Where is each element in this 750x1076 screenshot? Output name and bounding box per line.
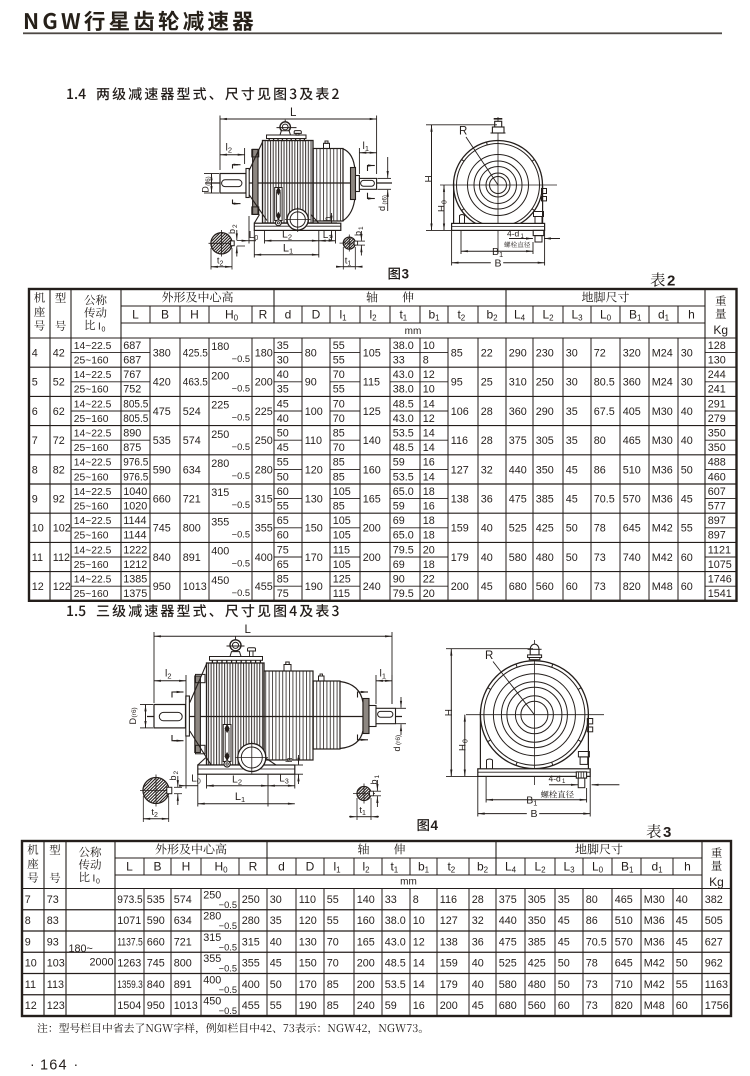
svg-text:241: 241 <box>708 384 726 396</box>
svg-text:d: d <box>278 860 285 874</box>
svg-text:4-d: 4-d <box>507 229 520 239</box>
svg-text:14~22.5: 14~22.5 <box>74 575 112 586</box>
svg-text:280: 280 <box>242 915 260 927</box>
svg-text:1013: 1013 <box>174 1000 198 1012</box>
svg-text:580: 580 <box>499 979 517 991</box>
svg-text:60: 60 <box>277 486 289 498</box>
svg-text:30: 30 <box>277 355 289 367</box>
svg-text:50: 50 <box>558 958 570 970</box>
svg-text:375: 375 <box>509 435 527 447</box>
svg-text:225: 225 <box>211 400 229 412</box>
svg-text:400: 400 <box>255 552 273 564</box>
svg-text:627: 627 <box>705 936 723 948</box>
svg-text:40: 40 <box>481 552 493 564</box>
svg-text:110: 110 <box>305 435 322 447</box>
svg-text:400: 400 <box>211 546 229 558</box>
svg-text:32: 32 <box>472 915 484 927</box>
svg-text:−0.5: −0.5 <box>232 471 250 481</box>
svg-text:973.5: 973.5 <box>117 894 142 906</box>
svg-text:85: 85 <box>333 428 345 440</box>
svg-text:100: 100 <box>305 406 323 418</box>
svg-text:375: 375 <box>499 894 517 906</box>
svg-text:1137.5: 1137.5 <box>117 936 142 948</box>
svg-text:3: 3 <box>402 267 410 282</box>
svg-text:574: 574 <box>174 894 192 906</box>
svg-text:45: 45 <box>566 464 578 476</box>
svg-text:−0.5: −0.5 <box>232 383 250 393</box>
svg-text:55: 55 <box>681 523 693 535</box>
svg-text:73: 73 <box>594 581 606 593</box>
svg-text:800: 800 <box>183 523 201 535</box>
svg-text:360: 360 <box>509 406 527 418</box>
svg-text:577: 577 <box>708 501 726 513</box>
svg-text:50: 50 <box>270 979 282 991</box>
svg-text:35: 35 <box>558 894 570 906</box>
svg-text:450: 450 <box>211 575 229 587</box>
svg-text:200: 200 <box>363 523 381 535</box>
svg-text:897: 897 <box>708 515 726 527</box>
svg-text:b: b <box>227 229 237 234</box>
svg-text:70: 70 <box>333 398 345 410</box>
svg-text:36: 36 <box>472 936 484 948</box>
svg-text:50: 50 <box>277 471 289 483</box>
svg-text:14: 14 <box>423 428 435 440</box>
svg-text:475: 475 <box>499 936 517 948</box>
svg-text:350: 350 <box>536 464 554 476</box>
svg-text:305: 305 <box>536 435 554 447</box>
svg-text:680: 680 <box>499 1000 517 1012</box>
svg-text:159: 159 <box>440 958 458 970</box>
svg-text:455: 455 <box>255 581 273 593</box>
svg-text:·: · <box>74 1056 79 1072</box>
svg-text:1375: 1375 <box>123 588 147 600</box>
svg-text:962: 962 <box>705 958 723 970</box>
svg-text:8: 8 <box>25 915 31 927</box>
svg-text:48.5: 48.5 <box>385 958 406 970</box>
svg-text:440: 440 <box>499 915 517 927</box>
svg-text:380: 380 <box>153 348 171 360</box>
svg-text:35: 35 <box>277 384 289 396</box>
svg-text:35: 35 <box>566 435 578 447</box>
svg-text:115: 115 <box>363 377 380 389</box>
svg-text:350: 350 <box>708 428 726 440</box>
svg-text:22: 22 <box>423 574 435 586</box>
svg-text:14: 14 <box>423 471 435 483</box>
svg-text:69: 69 <box>393 559 405 571</box>
svg-text:D: D <box>312 308 321 322</box>
svg-text:12: 12 <box>423 369 435 381</box>
svg-text:488: 488 <box>708 457 726 469</box>
svg-text:280: 280 <box>211 458 229 470</box>
svg-text:60: 60 <box>277 530 289 542</box>
svg-text:890: 890 <box>123 428 141 440</box>
svg-text:59: 59 <box>393 457 405 469</box>
svg-text:1040: 1040 <box>123 486 147 498</box>
svg-text:65: 65 <box>277 515 289 527</box>
svg-text:315: 315 <box>242 936 260 948</box>
svg-text:8: 8 <box>413 894 419 906</box>
svg-text:22: 22 <box>481 348 493 360</box>
svg-text:52: 52 <box>53 377 65 389</box>
svg-text:465: 465 <box>615 894 633 906</box>
svg-text:102: 102 <box>53 523 71 535</box>
svg-text:976.5: 976.5 <box>123 471 148 483</box>
svg-text:805.5: 805.5 <box>123 398 148 410</box>
svg-text:32: 32 <box>481 464 493 476</box>
svg-text:123: 123 <box>47 1000 65 1012</box>
svg-text:110: 110 <box>299 894 316 906</box>
svg-text:570: 570 <box>615 936 633 948</box>
svg-text:535: 535 <box>153 435 171 447</box>
svg-text:L: L <box>290 107 297 119</box>
svg-text:105: 105 <box>333 486 351 498</box>
svg-text:355: 355 <box>255 523 273 535</box>
svg-text:65: 65 <box>277 559 289 571</box>
svg-text:11: 11 <box>32 552 43 564</box>
svg-text:25~160: 25~160 <box>74 414 109 425</box>
svg-text:14~22.5: 14~22.5 <box>74 429 112 440</box>
svg-text:9: 9 <box>32 494 38 506</box>
svg-text:140: 140 <box>357 894 375 906</box>
svg-text:55: 55 <box>333 355 345 367</box>
svg-text:43.0: 43.0 <box>393 369 414 381</box>
svg-text:30: 30 <box>270 894 282 906</box>
svg-text:80: 80 <box>594 435 606 447</box>
svg-text:85: 85 <box>327 979 339 991</box>
svg-text:116: 116 <box>451 435 468 447</box>
svg-text:310: 310 <box>509 377 527 389</box>
svg-text:130: 130 <box>299 936 317 948</box>
svg-text:0: 0 <box>102 326 106 333</box>
svg-text:4: 4 <box>431 818 439 833</box>
svg-text:580: 580 <box>509 552 527 564</box>
svg-text:14~22.5: 14~22.5 <box>74 458 112 469</box>
svg-text:607: 607 <box>708 486 726 498</box>
svg-text:95: 95 <box>451 377 463 389</box>
svg-text:4-d: 4-d <box>549 774 562 784</box>
svg-text:130: 130 <box>708 355 726 367</box>
svg-text:55: 55 <box>327 894 339 906</box>
svg-text:−0.5: −0.5 <box>219 942 237 952</box>
svg-text:200: 200 <box>357 979 375 991</box>
svg-text:53.5: 53.5 <box>393 471 414 483</box>
svg-text:h: h <box>688 308 695 322</box>
svg-text:L: L <box>245 624 252 636</box>
svg-text:H: H <box>437 205 448 212</box>
svg-text:159: 159 <box>451 523 469 535</box>
svg-text:950: 950 <box>153 581 171 593</box>
svg-text:6: 6 <box>32 406 38 418</box>
svg-text:B: B <box>161 308 169 322</box>
svg-text:560: 560 <box>528 1000 546 1012</box>
svg-text:405: 405 <box>623 406 641 418</box>
svg-text:b: b <box>168 775 178 780</box>
svg-text:115: 115 <box>333 588 350 600</box>
svg-text:67.5: 67.5 <box>594 406 615 418</box>
svg-text:180~: 180~ <box>69 943 93 955</box>
svg-text:55: 55 <box>333 340 345 352</box>
svg-text:385: 385 <box>536 494 554 506</box>
svg-text:h: h <box>284 757 294 762</box>
svg-text:−0.5: −0.5 <box>232 529 250 539</box>
svg-text:425: 425 <box>528 958 546 970</box>
svg-text:127: 127 <box>451 464 469 476</box>
svg-text:16: 16 <box>423 501 435 513</box>
svg-text:40: 40 <box>472 979 484 991</box>
svg-text:93: 93 <box>47 936 59 948</box>
svg-text:R: R <box>485 650 493 662</box>
svg-text:645: 645 <box>615 958 633 970</box>
svg-text:840: 840 <box>147 979 165 991</box>
svg-text:30: 30 <box>566 377 578 389</box>
svg-text:M30: M30 <box>652 406 673 418</box>
svg-text:85: 85 <box>333 501 345 513</box>
svg-text:510: 510 <box>623 464 641 476</box>
svg-text:70.5: 70.5 <box>594 494 615 506</box>
svg-text:55: 55 <box>676 979 688 991</box>
svg-text:291: 291 <box>708 398 726 410</box>
svg-text:14: 14 <box>413 958 425 970</box>
svg-text:7: 7 <box>32 435 38 447</box>
svg-text:(r6): (r6) <box>131 707 138 717</box>
svg-text:70: 70 <box>327 958 339 970</box>
svg-text:590: 590 <box>147 915 165 927</box>
svg-text:38.0: 38.0 <box>385 915 406 927</box>
svg-text:10: 10 <box>423 384 435 396</box>
svg-text:460: 460 <box>708 471 726 483</box>
svg-text:40: 40 <box>681 435 693 447</box>
svg-text:200: 200 <box>211 370 229 382</box>
svg-text:−0.5: −0.5 <box>232 442 250 452</box>
svg-text:55: 55 <box>270 1000 282 1012</box>
svg-text:1121: 1121 <box>708 544 731 556</box>
svg-text:11: 11 <box>25 979 36 991</box>
svg-text:14~22.5: 14~22.5 <box>74 487 112 498</box>
svg-text:115: 115 <box>333 544 350 556</box>
svg-text:18: 18 <box>423 559 435 571</box>
svg-text:50: 50 <box>558 979 570 991</box>
svg-text:75: 75 <box>277 588 289 600</box>
svg-text:590: 590 <box>153 464 171 476</box>
svg-text:43.0: 43.0 <box>385 936 406 948</box>
svg-text:480: 480 <box>528 979 546 991</box>
svg-text:1212: 1212 <box>123 559 147 571</box>
svg-text:40: 40 <box>277 413 289 425</box>
svg-text:745: 745 <box>147 958 165 970</box>
svg-text:M36: M36 <box>644 915 665 927</box>
svg-text:200: 200 <box>363 552 381 564</box>
svg-text:9: 9 <box>25 936 31 948</box>
svg-text:891: 891 <box>174 979 192 991</box>
svg-text:164: 164 <box>40 1058 68 1074</box>
svg-text:767: 767 <box>123 369 141 381</box>
svg-text:179: 179 <box>451 552 469 564</box>
svg-text:40: 40 <box>481 523 493 535</box>
svg-text:59: 59 <box>385 1000 397 1012</box>
svg-text:200: 200 <box>440 1000 458 1012</box>
svg-text:85: 85 <box>451 348 463 360</box>
svg-text:127: 127 <box>440 915 458 927</box>
svg-text:−0.5: −0.5 <box>232 413 250 423</box>
svg-text:20: 20 <box>423 544 435 556</box>
svg-text:250: 250 <box>536 377 554 389</box>
svg-text:mm: mm <box>400 877 417 888</box>
svg-text:60: 60 <box>681 581 693 593</box>
svg-text:103: 103 <box>47 958 65 970</box>
svg-text:525: 525 <box>499 958 517 970</box>
svg-text:165: 165 <box>363 494 381 506</box>
svg-text:H: H <box>182 860 191 874</box>
svg-text:73: 73 <box>586 979 598 991</box>
svg-text:40: 40 <box>681 406 693 418</box>
svg-text:805.5: 805.5 <box>123 413 148 425</box>
svg-text:106: 106 <box>451 406 469 418</box>
svg-text:1071: 1071 <box>117 915 141 927</box>
svg-text:40: 40 <box>676 894 688 906</box>
svg-text:45: 45 <box>558 936 570 948</box>
svg-text:180: 180 <box>255 348 273 360</box>
svg-text:1746: 1746 <box>708 574 732 586</box>
svg-text:18: 18 <box>423 515 435 527</box>
svg-text:290: 290 <box>509 348 527 360</box>
svg-text:25~160: 25~160 <box>74 356 109 367</box>
svg-text:425.5: 425.5 <box>183 348 208 360</box>
svg-text:680: 680 <box>509 581 527 593</box>
svg-text:976.5: 976.5 <box>123 457 148 469</box>
svg-text:L: L <box>126 860 133 874</box>
svg-text:−0.5: −0.5 <box>219 1006 237 1016</box>
svg-text:M36: M36 <box>652 464 673 476</box>
svg-text:400: 400 <box>242 979 260 991</box>
svg-text:455: 455 <box>242 1000 260 1012</box>
svg-text:70: 70 <box>333 369 345 381</box>
svg-text:Kg: Kg <box>709 875 724 889</box>
svg-text:65.0: 65.0 <box>393 530 414 542</box>
svg-text:(r6): (r6) <box>382 195 388 204</box>
svg-text:1144: 1144 <box>123 530 146 542</box>
svg-text:2000: 2000 <box>89 957 113 969</box>
svg-text:25~160: 25~160 <box>74 589 109 600</box>
svg-text:385: 385 <box>528 936 546 948</box>
svg-text:20: 20 <box>423 588 435 600</box>
svg-text:M42: M42 <box>652 523 673 535</box>
svg-text:35: 35 <box>566 406 578 418</box>
svg-text:30: 30 <box>681 348 693 360</box>
svg-text:1: 1 <box>358 226 365 230</box>
svg-text:2: 2 <box>667 273 675 290</box>
svg-text:660: 660 <box>153 494 171 506</box>
svg-text:36: 36 <box>481 494 493 506</box>
svg-text:25~160: 25~160 <box>74 502 109 513</box>
svg-text:840: 840 <box>153 552 171 564</box>
svg-text:7: 7 <box>25 894 31 906</box>
svg-text:687: 687 <box>123 355 141 367</box>
svg-text:M30: M30 <box>652 435 673 447</box>
svg-text:190: 190 <box>299 1000 317 1012</box>
svg-text:25~160: 25~160 <box>74 443 109 454</box>
svg-text:·: · <box>30 1056 35 1072</box>
svg-text:M36: M36 <box>644 936 665 948</box>
svg-text:320: 320 <box>623 348 641 360</box>
svg-text:82: 82 <box>53 464 65 476</box>
svg-text:mm: mm <box>405 326 422 337</box>
svg-text:425: 425 <box>536 523 554 535</box>
svg-text:70: 70 <box>327 936 339 948</box>
svg-text:50: 50 <box>676 958 688 970</box>
svg-text:113: 113 <box>47 979 64 991</box>
svg-text:1263: 1263 <box>117 958 141 970</box>
svg-text:1013: 1013 <box>183 581 207 593</box>
svg-text:B: B <box>531 808 538 820</box>
svg-text:250: 250 <box>242 894 260 906</box>
svg-text:−0.5: −0.5 <box>232 500 250 510</box>
svg-text:38.0: 38.0 <box>393 340 414 352</box>
svg-text:D: D <box>306 860 315 874</box>
svg-text:10: 10 <box>413 915 425 927</box>
svg-text:48.5: 48.5 <box>393 398 414 410</box>
svg-text:12: 12 <box>32 581 44 593</box>
svg-text:H: H <box>457 744 468 751</box>
svg-text:225: 225 <box>255 406 273 418</box>
svg-text:90: 90 <box>393 574 405 586</box>
svg-text:250: 250 <box>255 435 273 447</box>
svg-text:60: 60 <box>676 1000 688 1012</box>
svg-text:R: R <box>259 308 268 322</box>
svg-text:1359.3: 1359.3 <box>117 979 142 991</box>
svg-text:200: 200 <box>357 958 375 970</box>
svg-text:53.5: 53.5 <box>393 428 414 440</box>
svg-text:h: h <box>323 216 333 221</box>
svg-text:−0.5: −0.5 <box>232 559 250 569</box>
svg-text:28: 28 <box>481 406 493 418</box>
svg-text:(r6): (r6) <box>395 735 402 745</box>
svg-text:60: 60 <box>558 1000 570 1012</box>
svg-text:M24: M24 <box>652 348 673 360</box>
svg-text:1020: 1020 <box>123 501 147 513</box>
svg-text:H: H <box>444 709 455 716</box>
svg-text:355: 355 <box>211 516 229 528</box>
svg-text:B: B <box>153 860 161 874</box>
svg-text:130: 130 <box>305 494 323 506</box>
svg-text:M48: M48 <box>652 581 673 593</box>
svg-text:72: 72 <box>53 435 65 447</box>
svg-text:128: 128 <box>708 340 726 352</box>
svg-text:240: 240 <box>357 1000 375 1012</box>
svg-text:150: 150 <box>299 958 317 970</box>
svg-text:59: 59 <box>393 501 405 513</box>
svg-text:200: 200 <box>255 377 273 389</box>
svg-text:73: 73 <box>594 552 606 564</box>
svg-text:1222: 1222 <box>123 544 147 556</box>
svg-text:55: 55 <box>277 457 289 469</box>
svg-text:45: 45 <box>472 1000 484 1012</box>
svg-text:25~160: 25~160 <box>74 531 109 542</box>
svg-text:80.5: 80.5 <box>594 377 615 389</box>
svg-text:55: 55 <box>277 501 289 513</box>
svg-text:125: 125 <box>333 574 351 586</box>
svg-text:475: 475 <box>153 406 171 418</box>
svg-text:d: d <box>392 746 402 751</box>
svg-text:78: 78 <box>594 523 606 535</box>
svg-text:30: 30 <box>566 348 578 360</box>
svg-text:M30: M30 <box>644 894 665 906</box>
svg-text:14: 14 <box>423 398 435 410</box>
svg-text:1756: 1756 <box>705 1000 729 1012</box>
svg-text:40: 40 <box>270 936 282 948</box>
svg-text:M48: M48 <box>644 1000 665 1012</box>
svg-text:105: 105 <box>333 515 351 527</box>
svg-text:28: 28 <box>472 894 484 906</box>
